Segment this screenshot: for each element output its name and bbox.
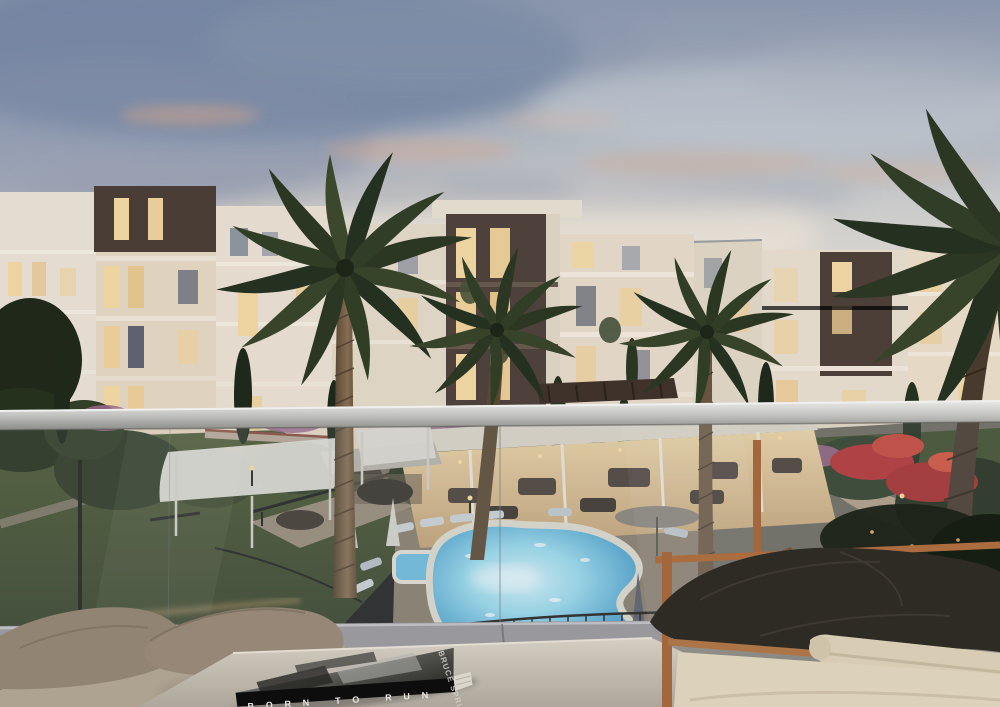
scene-canvas: BORN TO RUN BRUCE SPRINGSTEEN bbox=[0, 0, 1000, 707]
dusk-wash bbox=[0, 0, 1000, 707]
balcony-dusk-scene: BORN TO RUN BRUCE SPRINGSTEEN bbox=[0, 0, 1000, 707]
